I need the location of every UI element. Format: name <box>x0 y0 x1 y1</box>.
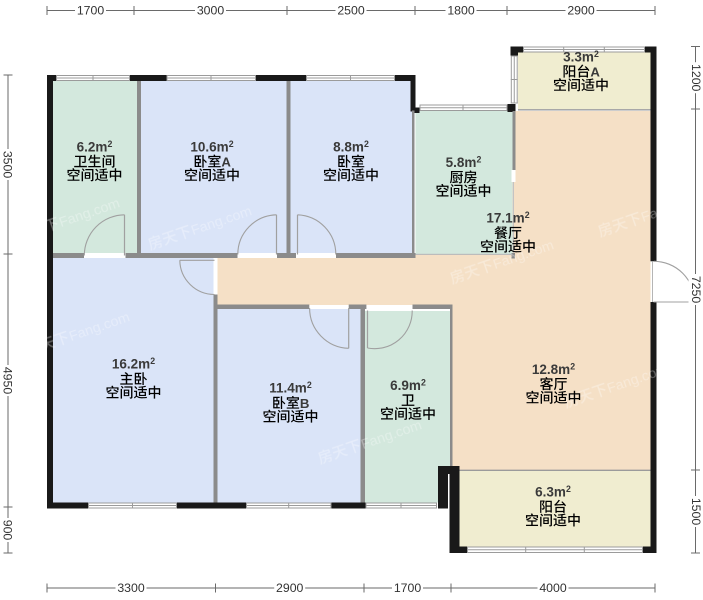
svg-text:2900: 2900 <box>276 581 304 595</box>
svg-text:6.9m2: 6.9m2 <box>390 378 426 394</box>
svg-text:6.2m2: 6.2m2 <box>77 139 113 155</box>
svg-text:1500: 1500 <box>689 498 703 526</box>
svg-text:7250: 7250 <box>689 276 703 304</box>
svg-text:10.6m2: 10.6m2 <box>190 139 233 155</box>
svg-text:11.4m2: 11.4m2 <box>269 380 312 396</box>
svg-text:2900: 2900 <box>567 4 595 18</box>
svg-text:1700: 1700 <box>394 581 422 595</box>
svg-text:900: 900 <box>0 520 14 541</box>
svg-text:4000: 4000 <box>539 581 567 595</box>
svg-text:1700: 1700 <box>77 4 105 18</box>
svg-text:17.1m2: 17.1m2 <box>486 210 529 226</box>
svg-text:A: A <box>221 155 231 170</box>
svg-text:3000: 3000 <box>197 4 225 18</box>
svg-text:16.2m2: 16.2m2 <box>112 356 155 372</box>
svg-text:B: B <box>300 396 310 411</box>
svg-text:1200: 1200 <box>689 64 703 92</box>
svg-text:5.8m2: 5.8m2 <box>446 155 482 171</box>
svg-text:12.8m2: 12.8m2 <box>532 361 575 377</box>
svg-text:A: A <box>590 65 600 80</box>
svg-text:3300: 3300 <box>117 581 145 595</box>
svg-text:2500: 2500 <box>337 4 365 18</box>
svg-text:6.3m2: 6.3m2 <box>535 484 571 500</box>
svg-text:4950: 4950 <box>0 367 14 395</box>
svg-text:1800: 1800 <box>447 4 475 18</box>
svg-text:8.8m2: 8.8m2 <box>333 139 369 155</box>
svg-text:3.3m2: 3.3m2 <box>563 49 599 65</box>
svg-text:3500: 3500 <box>0 151 14 179</box>
